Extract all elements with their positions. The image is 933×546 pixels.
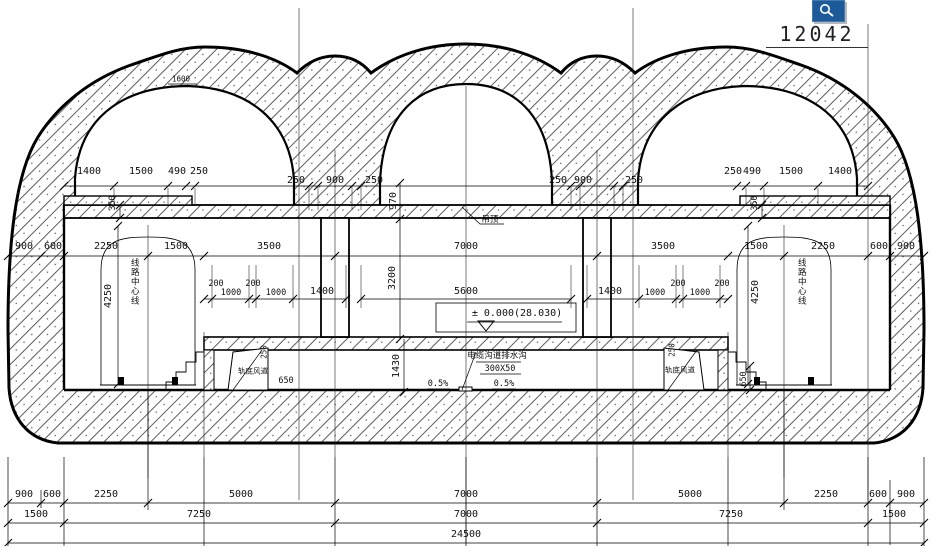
- dim-botB-1500L: 1500: [24, 510, 48, 520]
- dim-botB-7000: 7000: [454, 510, 478, 520]
- dim-botA-7000: 7000: [454, 490, 478, 500]
- dim-botA-600R: 600: [869, 490, 887, 500]
- dim-col-right-900: 900: [574, 176, 592, 186]
- dim-row-200b: 200: [245, 280, 260, 289]
- dim-row-1400R: 1400: [598, 287, 622, 297]
- dim-top-right-250: 250: [724, 167, 742, 177]
- ceiling-beam: [64, 205, 890, 218]
- slab-pier-right: [718, 350, 728, 390]
- dim-mid-1500L: 1500: [164, 242, 188, 252]
- dim-row-1000c: 1000: [645, 289, 665, 298]
- dim-mid-600L: 600: [44, 242, 62, 252]
- dim-mid-900R: 900: [897, 242, 915, 252]
- label-1600: 1600: [172, 75, 190, 83]
- slab-pier-left: [204, 350, 214, 390]
- dim-top-left-1500: 1500: [129, 167, 153, 177]
- dim-top-right-1500: 1500: [779, 167, 803, 177]
- dim-col-right-250b: 250: [625, 176, 643, 186]
- dim-botA-900R: 900: [897, 490, 915, 500]
- dim-vert-650R: 650: [740, 371, 749, 386]
- dim-botB-7250L: 7250: [187, 510, 211, 520]
- label-track-centerline-left: 线路中心线: [130, 258, 139, 306]
- dim-row-1000a: 1000: [221, 289, 241, 298]
- dim-vert-350L: 350: [109, 195, 118, 210]
- label-slope-right: 0.5%: [494, 380, 514, 389]
- dim-mid-7000: 7000: [454, 242, 478, 252]
- dim-row-200d: 200: [714, 280, 729, 289]
- dim-top-left-250: 250: [190, 167, 208, 177]
- label-underrail-duct-left: 轨底风道: [238, 367, 268, 375]
- dim-mid-2250R: 2250: [811, 242, 835, 252]
- dim-col-left-250b: 250: [365, 176, 383, 186]
- dim-row-1000d: 1000: [690, 289, 710, 298]
- dim-row-1000b: 1000: [266, 289, 286, 298]
- dim-botA-2250L: 2250: [94, 490, 118, 500]
- dim-botB-1500R: 1500: [882, 510, 906, 520]
- label-track-centerline-right: 线路中心线: [797, 258, 806, 306]
- dim-mid-600R: 600: [870, 242, 888, 252]
- dim-small-250R: 250: [668, 343, 676, 357]
- dim-botA-900L: 900: [15, 490, 33, 500]
- dim-mid-900L: 900: [15, 242, 33, 252]
- label-suspended-ceiling: 吊顶: [481, 216, 498, 225]
- dim-top-left-1400: 1400: [77, 167, 101, 177]
- rail: [172, 377, 178, 385]
- label-level-mark: ± 0.000(28.030): [472, 309, 562, 319]
- dim-row-5600: 5600: [454, 287, 478, 297]
- dim-vert-970: 970: [389, 192, 399, 210]
- zoom-tool-icon[interactable]: [812, 0, 845, 22]
- dim-col-left-250a: 250: [287, 176, 305, 186]
- dim-mid-1500R: 1500: [744, 242, 768, 252]
- dim-row-200c: 200: [670, 280, 685, 289]
- dim-mid-2250L: 2250: [94, 242, 118, 252]
- label-underrail-duct-right: 轨底风道: [665, 366, 695, 374]
- dim-botA-2250R: 2250: [814, 490, 838, 500]
- dim-650L: 650: [278, 377, 293, 386]
- dim-mid-3500L: 3500: [257, 242, 281, 252]
- beam-upstand-left: [64, 196, 192, 205]
- dim-botB-7250R: 7250: [719, 510, 743, 520]
- dim-vert-3200: 3200: [388, 266, 398, 290]
- dim-vert-4250L: 4250: [104, 284, 114, 308]
- label-slope-left: 0.5%: [428, 380, 448, 389]
- dim-col-right-250a: 250: [549, 176, 567, 186]
- beam-upstand-right: [740, 196, 890, 205]
- dim-top-right-490: 490: [743, 167, 761, 177]
- dim-botA-5000L: 5000: [229, 490, 253, 500]
- dim-top-right-1400: 1400: [828, 167, 852, 177]
- dim-row-1400L: 1400: [310, 287, 334, 297]
- label-trench-size: 300X50: [485, 365, 516, 374]
- dim-top-left-490: 490: [168, 167, 186, 177]
- tunnel-cross-section-drawing: [0, 0, 933, 546]
- dim-botA-600L: 600: [43, 490, 61, 500]
- cable-trench: [459, 387, 472, 391]
- dim-botA-5000R: 5000: [678, 490, 702, 500]
- dim-vert-350R: 350: [751, 195, 760, 210]
- dim-vert-1430: 1430: [392, 354, 402, 378]
- rail: [808, 377, 814, 385]
- dim-small-250L: 250: [260, 345, 268, 359]
- dim-vert-4250R: 4250: [751, 280, 761, 304]
- dim-col-left-900: 900: [326, 176, 344, 186]
- drawing-canvas: 1400150049025025049015001400250900250250…: [0, 0, 933, 546]
- label-cable-trench: 电缆沟道排水沟: [467, 352, 527, 361]
- dim-botC-24500: 24500: [451, 530, 481, 540]
- drawing-number: 12042: [766, 22, 868, 48]
- magnifier-icon: [813, 1, 841, 19]
- rail: [754, 377, 760, 385]
- dim-mid-3500R: 3500: [651, 242, 675, 252]
